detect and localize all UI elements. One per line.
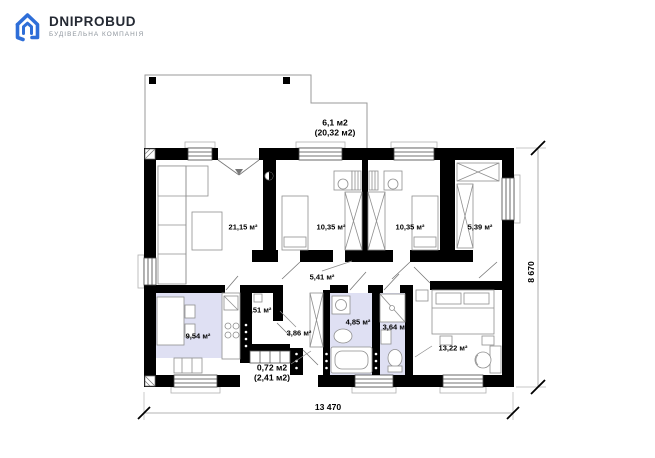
- pantry-shelf: [254, 294, 262, 302]
- dimension-width: 13 470: [315, 402, 341, 412]
- kitchen-counter: [222, 293, 240, 359]
- window: [443, 375, 483, 387]
- dimension-height: 8 670: [526, 261, 536, 283]
- bathroom-sink: [334, 329, 352, 343]
- shelf-unit: [369, 171, 378, 190]
- wc-sink: [381, 330, 391, 344]
- desk-chair: [384, 171, 402, 190]
- wardrobe-unit: [345, 192, 362, 250]
- hall-wardrobe: [310, 293, 323, 347]
- room-label-wc: 3,64 м²: [383, 323, 408, 332]
- room-label-wardrobe: 5,39 м²: [468, 223, 493, 232]
- wardrobe-unit: [457, 163, 499, 248]
- nightstand: [482, 336, 494, 345]
- shelf-unit: [352, 171, 361, 190]
- window: [144, 258, 156, 285]
- desk-chair: [334, 171, 352, 190]
- room-label-living: 21,15 м²: [229, 223, 258, 232]
- window: [355, 375, 393, 387]
- room-label-bedroom-1: 10,35 м²: [317, 223, 346, 232]
- bathtub: [331, 347, 372, 373]
- door-hinge-symbol: [265, 172, 273, 180]
- room-label-bathroom: 4,85 м²: [346, 318, 371, 327]
- window: [188, 148, 212, 160]
- nightstand: [416, 290, 428, 301]
- room-label-pantry: 2,51 м²: [247, 306, 272, 315]
- wardrobe-unit: [368, 192, 385, 250]
- window: [299, 148, 342, 160]
- room-label-kitchen: 9,54 м²: [186, 332, 211, 341]
- room-label-entry-hall: 3,86 м²: [287, 329, 312, 338]
- terrace-column: [149, 77, 156, 84]
- porch-area-line1: 0,72 м2: [254, 363, 290, 373]
- terrace-column: [283, 77, 290, 84]
- washing-machine: [332, 296, 350, 314]
- window: [394, 148, 434, 160]
- vanity-stool: [475, 346, 501, 373]
- shower: [380, 294, 405, 322]
- oven: [174, 358, 202, 373]
- entrance-steps: [250, 351, 290, 363]
- room-label-terrace: 6,1 м2 (20,32 м2): [315, 118, 356, 139]
- porch-area-line2: (2,41 м2): [254, 373, 290, 383]
- room-label-hallway: 5,41 м²: [310, 273, 335, 282]
- terrace-area-line1: 6,1 м2: [315, 118, 356, 128]
- terrace-door: [218, 159, 259, 175]
- room-label-bedroom-3: 13,22 м²: [439, 344, 468, 353]
- terrace-area-line2: (20,32 м2): [315, 128, 356, 138]
- double-bed: [432, 290, 494, 334]
- bed: [282, 196, 308, 250]
- room-label-bedroom-2: 10,35 м²: [396, 223, 425, 232]
- coffee-table: [192, 212, 222, 250]
- window: [502, 178, 514, 220]
- floor-plan-page: DNIPROBUD БУДІВЕЛЬНА КОМПАНІЯ: [0, 0, 655, 458]
- room-label-porch: 0,72 м2 (2,41 м2): [254, 363, 290, 384]
- window: [174, 375, 217, 387]
- toilet: [388, 350, 402, 373]
